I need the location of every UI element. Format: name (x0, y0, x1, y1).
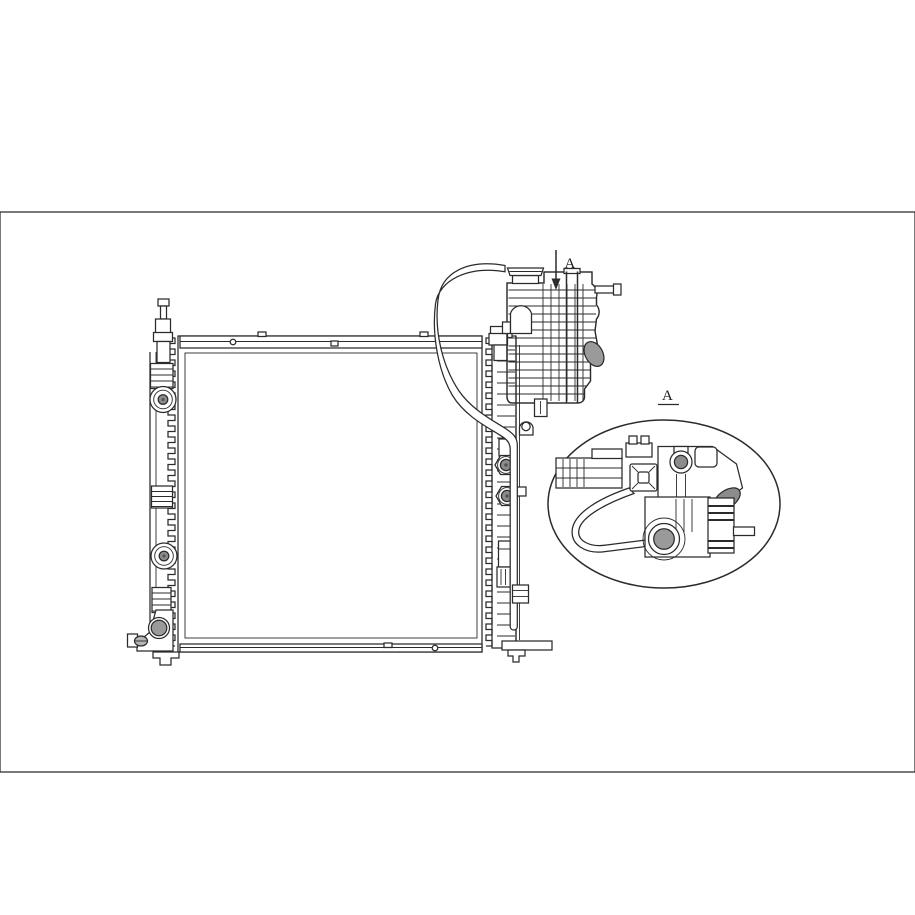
hose-clamp-collar (513, 585, 529, 603)
detail-right-block (708, 498, 755, 553)
tank-rib-grid (509, 284, 597, 401)
detail-inlet-pipe (556, 449, 622, 488)
detail-lower-body (643, 497, 710, 560)
radiator-technical-drawing: MIR-AUTO (0, 0, 915, 915)
radiator-core (178, 336, 482, 652)
detail-callout: A (548, 388, 780, 588)
radiator-front-view (128, 299, 483, 665)
tank-outlet-pipe (595, 284, 621, 295)
expansion-tank-body (507, 272, 599, 403)
ribbed-connector-lower (152, 588, 171, 613)
mount-foot-left (153, 652, 179, 665)
side-view-crimp-edge (486, 338, 492, 646)
radiator-side-view (486, 327, 552, 663)
ribbed-connector-middle (152, 486, 173, 508)
detail-label: A (662, 388, 673, 404)
tank-bracket-upper (489, 334, 508, 346)
detail-x-flange (630, 464, 657, 491)
section-arrow-label: A (565, 256, 576, 272)
tank-cap (508, 268, 544, 284)
diagram-canvas: MIR-AUTO (0, 0, 915, 915)
tank-side-port (580, 338, 608, 370)
detail-stub-pipe (734, 527, 755, 536)
tank-strap (564, 269, 580, 404)
left-tank (128, 299, 178, 651)
hose-clip-tab (520, 422, 534, 435)
ribbed-connector-upper (151, 364, 174, 389)
expansion-tank (503, 268, 622, 417)
detail-top-bracket (626, 436, 652, 457)
core-bottom-header (153, 643, 482, 665)
side-view-foot (502, 641, 552, 662)
tank-port-lower (151, 543, 177, 569)
tank-bottom-tab (535, 399, 548, 417)
detail-hose-loop (572, 488, 650, 552)
tank-port-upper (150, 387, 176, 413)
tank-bracket-lower (494, 345, 507, 361)
